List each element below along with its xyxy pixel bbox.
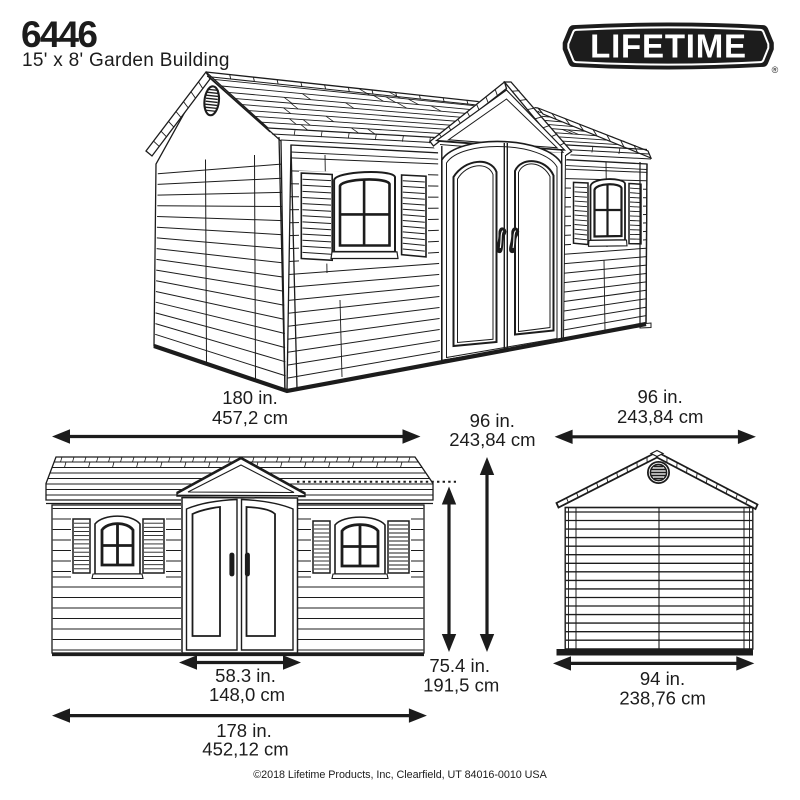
svg-text:®: ® bbox=[772, 65, 779, 75]
svg-text:243,84 cm: 243,84 cm bbox=[617, 406, 703, 427]
svg-text:LIFETIME: LIFETIME bbox=[590, 28, 747, 65]
svg-text:452,12 cm: 452,12 cm bbox=[202, 739, 288, 760]
svg-text:94 in.: 94 in. bbox=[640, 668, 685, 689]
svg-text:457,2 cm: 457,2 cm bbox=[212, 407, 288, 428]
svg-text:96 in.: 96 in. bbox=[470, 410, 515, 431]
svg-text:191,5 cm: 191,5 cm bbox=[423, 675, 499, 696]
svg-text:15' x 8' Garden Building: 15' x 8' Garden Building bbox=[22, 50, 230, 71]
svg-text:75.4 in.: 75.4 in. bbox=[429, 655, 490, 676]
svg-text:243,84 cm: 243,84 cm bbox=[449, 429, 535, 450]
svg-text:238,76 cm: 238,76 cm bbox=[619, 688, 705, 709]
svg-text:©2018 Lifetime Products, Inc,: ©2018 Lifetime Products, Inc, Clearfield… bbox=[253, 769, 547, 781]
svg-text:180 in.: 180 in. bbox=[222, 387, 278, 408]
svg-text:58.3 in.: 58.3 in. bbox=[215, 665, 276, 686]
svg-text:96 in.: 96 in. bbox=[637, 386, 682, 407]
svg-text:148,0 cm: 148,0 cm bbox=[209, 684, 285, 705]
svg-text:6446: 6446 bbox=[21, 14, 97, 55]
